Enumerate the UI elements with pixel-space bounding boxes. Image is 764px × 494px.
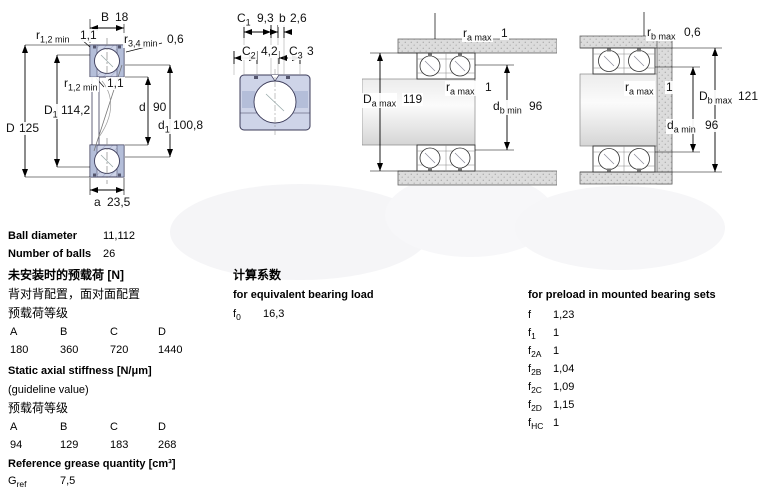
factor-f2c-value: 1,09 bbox=[553, 381, 574, 394]
ring-segment bbox=[240, 69, 310, 135]
preload-value-c: 720 bbox=[110, 344, 128, 357]
diagram-bearing-face-view: C1 9,3 b 2,6 C2 4,2 C3 3 bbox=[228, 5, 363, 145]
factor-f2c-symbol: f2C bbox=[528, 381, 542, 395]
diagram-housing-fit: ra max 1 ra max 1 Da max 119 db min 96 bbox=[362, 5, 557, 220]
dim-d1-name: d1 bbox=[157, 119, 171, 134]
ball-diameter-value: 11,112 bbox=[103, 230, 135, 243]
dim-C3-value: 3 bbox=[306, 45, 315, 58]
dim-r34min-name: r3,4 min bbox=[123, 33, 159, 48]
dim-a-name: a bbox=[93, 196, 102, 211]
dim-C3-name: C3 bbox=[288, 45, 304, 60]
preload-class-a-header: A bbox=[10, 326, 17, 339]
preload-class-b-header: B bbox=[60, 326, 67, 339]
factor-f2d-symbol: f2D bbox=[528, 399, 542, 413]
dim-D-name: D bbox=[5, 122, 16, 137]
dim-d-name: d bbox=[138, 101, 147, 116]
dim-C1-name: C1 bbox=[236, 12, 252, 27]
dim-b-name: b bbox=[278, 12, 287, 27]
dim-Db-max-name: Db max bbox=[698, 90, 733, 105]
stiffness-heading: Static axial stiffness [N/μm] bbox=[8, 365, 152, 378]
preload-arrangement-line: 背对背配置，面对面配置 bbox=[8, 288, 140, 301]
dim-ra-max-mid-value: 1 bbox=[484, 81, 493, 94]
grease-value: 7,5 bbox=[60, 475, 75, 488]
dim-C2-name: C2 bbox=[241, 45, 257, 60]
equivalent-load-heading: for equivalent bearing load bbox=[233, 289, 374, 302]
dim-Da-max-value: 119 bbox=[402, 93, 423, 106]
factor-f2b-value: 1,04 bbox=[553, 363, 574, 376]
diagram-shaft-fit: rb max 0,6 ra max 1 Db max 121 da min 96 bbox=[562, 5, 762, 220]
diagram-bearing-cross-section: B 18 r1,2 min 1,1 r3,4 min 0,6 r1,2 min … bbox=[5, 5, 220, 220]
factor-f-symbol: f bbox=[528, 309, 531, 323]
stiffness-value-c: 183 bbox=[110, 439, 128, 452]
f0-value: 16,3 bbox=[263, 308, 284, 321]
dim-D-value: 125 bbox=[18, 122, 40, 135]
stiffness-value-a: 94 bbox=[10, 439, 22, 452]
stiffness-value-b: 129 bbox=[60, 439, 78, 452]
grease-heading: Reference grease quantity [cm³] bbox=[8, 458, 176, 471]
preload-class-d-header: D bbox=[158, 326, 166, 339]
dim-C2-value: 4,2 bbox=[260, 45, 279, 58]
preload-value-d: 1440 bbox=[158, 344, 182, 357]
dim-r12min-top-name: r1,2 min bbox=[35, 29, 71, 44]
dim-ra-max-name: ra max bbox=[624, 81, 655, 96]
dim-da-min-value: 96 bbox=[704, 119, 719, 132]
dim-ra-max-top-value: 1 bbox=[500, 27, 509, 40]
dim-C1-value: 9,3 bbox=[256, 12, 275, 25]
preload-unmounted-heading: 未安装时的预载荷 [N] bbox=[8, 269, 124, 282]
bearing-pair-top bbox=[417, 53, 475, 79]
dim-da-min-name: da min bbox=[666, 119, 697, 134]
number-of-balls-value: 26 bbox=[103, 248, 115, 261]
dim-d1-value: 100,8 bbox=[172, 119, 204, 132]
factor-f2b-symbol: f2B bbox=[528, 363, 541, 377]
factor-fhc-symbol: fHC bbox=[528, 417, 543, 431]
bearing-pair-bottom bbox=[417, 145, 475, 171]
factor-f1-value: 1 bbox=[553, 327, 559, 340]
dim-D1-name: D1 bbox=[43, 104, 59, 119]
calculation-factors-heading: 计算系数 bbox=[233, 269, 281, 282]
dim-D1-value: 114,2 bbox=[60, 104, 91, 117]
dim-b-value: 2,6 bbox=[289, 12, 308, 25]
stiffness-class-b-header: B bbox=[60, 421, 67, 434]
stiffness-class-c-header: C bbox=[110, 421, 118, 434]
preload-class-line: 预载荷等级 bbox=[8, 307, 68, 320]
stiffness-class-d-header: D bbox=[158, 421, 166, 434]
preload-class-c-header: C bbox=[110, 326, 118, 339]
factor-f2a-value: 1 bbox=[553, 345, 559, 358]
dim-db-min-value: 96 bbox=[528, 100, 543, 113]
dim-Db-max-value: 121 bbox=[737, 90, 759, 103]
stiffness-class-a-header: A bbox=[10, 421, 17, 434]
factor-f2d-value: 1,15 bbox=[553, 399, 574, 412]
stiffness-note: (guideline value) bbox=[8, 384, 89, 397]
factor-f-value: 1,23 bbox=[553, 309, 574, 322]
dim-r12min-inner-name: r1,2 min bbox=[63, 77, 99, 92]
dim-Da-max-name: Da max bbox=[362, 93, 397, 108]
dim-r12min-inner-value: 1,1 bbox=[106, 77, 125, 90]
preload-value-a: 180 bbox=[10, 344, 28, 357]
factor-f2a-symbol: f2A bbox=[528, 345, 541, 359]
number-of-balls-label: Number of balls bbox=[8, 248, 91, 261]
dim-rb-max-name: rb max bbox=[646, 26, 677, 41]
dim-d-value: 90 bbox=[152, 101, 167, 114]
ball-diameter-label: Ball diameter bbox=[8, 230, 77, 243]
stiffness-value-d: 268 bbox=[158, 439, 176, 452]
dim-B-name: B bbox=[100, 11, 110, 26]
dim-ra-max-value: 1 bbox=[665, 81, 674, 94]
factor-f1-symbol: f1 bbox=[528, 327, 536, 341]
dim-ra-max-mid-name: ra max bbox=[445, 81, 476, 96]
dim-a-value: 23,5 bbox=[106, 196, 131, 209]
dim-db-min-name: db min bbox=[492, 100, 523, 115]
dim-ra-max-top-name: ra max bbox=[462, 27, 493, 42]
stiffness-class-line: 预载荷等级 bbox=[8, 402, 68, 415]
preload-factors-heading: for preload in mounted bearing sets bbox=[528, 289, 716, 302]
bearing-datasheet-page: B 18 r1,2 min 1,1 r3,4 min 0,6 r1,2 min … bbox=[0, 0, 764, 494]
dim-r12min-top-value: 1,1 bbox=[79, 29, 98, 42]
dim-r34min-value: 0,6 bbox=[166, 33, 185, 46]
f0-symbol: f0 bbox=[233, 308, 241, 322]
preload-value-b: 360 bbox=[60, 344, 78, 357]
dim-B-value: 18 bbox=[114, 11, 129, 24]
dim-rb-max-value: 0,6 bbox=[683, 26, 702, 39]
factor-fhc-value: 1 bbox=[553, 417, 559, 430]
grease-symbol: Gref bbox=[8, 475, 26, 489]
